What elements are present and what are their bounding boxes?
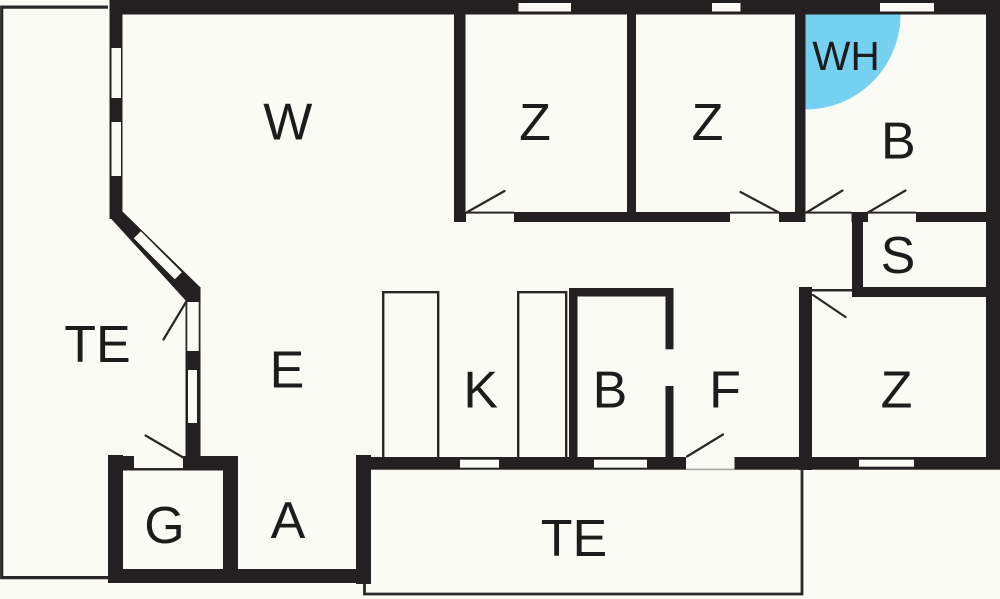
svg-text:E: E xyxy=(270,342,305,400)
svg-text:Z: Z xyxy=(692,94,724,152)
svg-text:F: F xyxy=(709,362,741,420)
svg-text:A: A xyxy=(271,492,306,550)
svg-text:Z: Z xyxy=(881,362,913,420)
svg-text:W: W xyxy=(263,93,312,151)
svg-text:TE: TE xyxy=(541,510,607,568)
svg-text:B: B xyxy=(593,362,628,420)
svg-text:TE: TE xyxy=(64,316,130,374)
svg-text:G: G xyxy=(144,497,184,555)
svg-text:Z: Z xyxy=(519,94,551,152)
svg-text:S: S xyxy=(881,227,916,285)
svg-text:B: B xyxy=(881,113,916,171)
svg-text:K: K xyxy=(463,362,498,420)
svg-text:WH: WH xyxy=(812,33,879,79)
